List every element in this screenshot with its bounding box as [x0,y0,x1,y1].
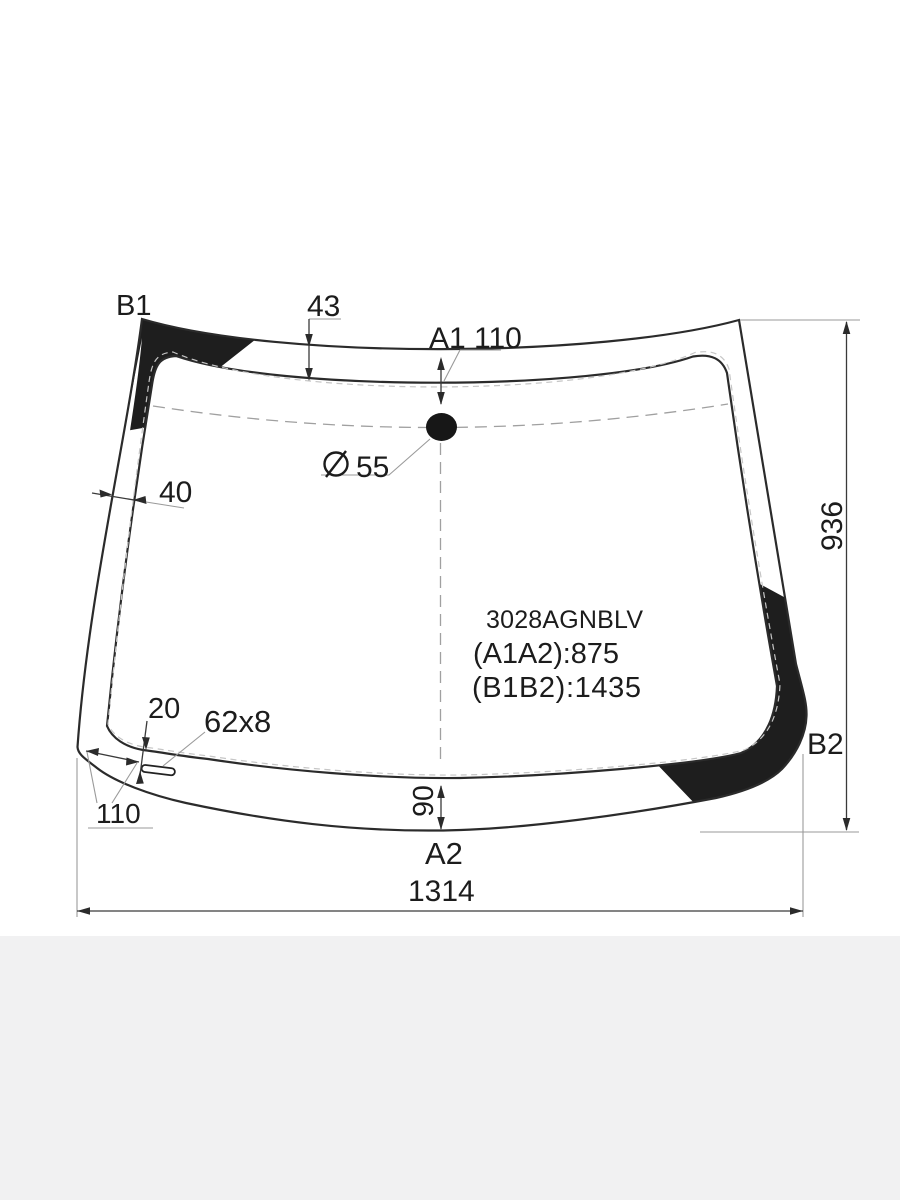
svg-text:1314: 1314 [408,875,475,908]
svg-text:A1 110: A1 110 [429,322,522,355]
svg-text:3028AGNBLV: 3028AGNBLV [486,606,643,634]
svg-text:40: 40 [159,476,192,509]
svg-text:(B1B2):1435: (B1B2):1435 [472,672,641,704]
svg-text:55: 55 [356,451,389,484]
svg-text:62x8: 62x8 [204,704,271,739]
svg-text:20: 20 [148,693,180,725]
svg-text:936: 936 [816,501,849,551]
svg-text:110: 110 [96,798,141,829]
svg-text:A2: A2 [425,836,463,871]
svg-text:43: 43 [307,290,340,323]
svg-text:90: 90 [408,785,440,817]
svg-text:B2: B2 [807,728,844,761]
svg-text:(A1A2):875: (A1A2):875 [473,638,619,670]
svg-text:B1: B1 [116,290,151,322]
